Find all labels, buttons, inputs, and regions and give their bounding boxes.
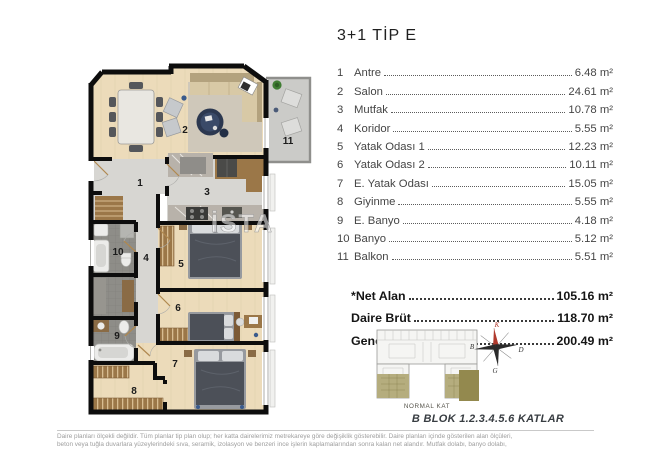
room-label-antre: 1 <box>137 178 143 189</box>
room-list-item: 10Banyo5.12 m² <box>337 227 613 245</box>
compass-rose: K B D G <box>468 320 524 376</box>
bedroom7-furniture <box>184 349 256 409</box>
plan-title: 3+1 TİP E <box>337 27 613 45</box>
room-list-item: 11Balkon5.51 m² <box>337 245 613 263</box>
room-list-item: 8Giyinme5.55 m² <box>337 190 613 208</box>
dot-leader <box>398 204 571 205</box>
compass-north-label: K <box>494 321 500 329</box>
block-caption: B BLOK 1.2.3.4.5.6 KATLAR <box>378 413 598 425</box>
total-net: *Net Alan105.16 m² <box>337 280 613 303</box>
room-label-yatak1: 5 <box>178 259 184 270</box>
dot-leader <box>393 131 571 132</box>
dot-leader <box>403 223 572 224</box>
room-label-banyo: 10 <box>112 247 124 258</box>
info-panel: 3+1 TİP E 1Antre6.48 m² 2Salon24.61 m² 3… <box>337 27 613 348</box>
room-list-item: 9E. Banyo4.18 m² <box>337 208 613 226</box>
room-label-salon: 2 <box>182 125 188 136</box>
dot-leader <box>432 186 565 187</box>
dot-leader <box>428 167 567 168</box>
floor-plan-sheet: 1 2 3 4 5 6 7 8 9 10 11 İSTA 3+1 TİP E 1… <box>0 0 650 450</box>
disclaimer: Daire planları ölçekli değildir. Tüm pla… <box>57 433 594 450</box>
dot-leader <box>409 298 554 300</box>
room-label-giyinme: 8 <box>131 386 137 397</box>
dot-leader <box>384 75 572 76</box>
room-list-item: 6Yatak Odası 210.11 m² <box>337 153 613 171</box>
floor-plan: 1 2 3 4 5 6 7 8 9 10 11 İSTA <box>80 60 314 416</box>
room-list-item: 5Yatak Odası 112.23 m² <box>337 135 613 153</box>
key-plan-wings <box>377 370 479 401</box>
dot-leader <box>386 94 566 95</box>
compass-south-label: G <box>492 367 497 375</box>
disclaimer-line2: beton veya tuğla duvarlara yüzeylerindek… <box>57 441 594 449</box>
disclaimer-line1: Daire planları ölçekli değildir. Tüm pla… <box>57 433 594 441</box>
room-label-eyatak: 7 <box>172 359 178 370</box>
room-label-ebanyo: 9 <box>114 331 120 342</box>
dot-leader <box>428 149 566 150</box>
key-plan-label: NORMAL KAT <box>368 403 486 410</box>
room-list-item: 3Mutfak10.78 m² <box>337 98 613 116</box>
antre-furniture <box>95 196 123 220</box>
room-list: 1Antre6.48 m² 2Salon24.61 m² 3Mutfak10.7… <box>337 61 613 263</box>
room-list-item: 4Koridor5.55 m² <box>337 116 613 134</box>
room-list-item: 1Antre6.48 m² <box>337 61 613 79</box>
room-label-yatak2: 6 <box>175 303 181 314</box>
dot-leader <box>391 112 566 113</box>
room-label-koridor: 4 <box>143 253 149 264</box>
divider-line <box>57 430 594 431</box>
dot-leader <box>389 241 572 242</box>
compass-west-label: B <box>470 343 475 351</box>
room-list-item: 2Salon24.61 m² <box>337 79 613 97</box>
key-plan <box>375 328 479 404</box>
room-label-mutfak: 3 <box>204 187 210 198</box>
watermark: İSTA <box>211 210 274 238</box>
room-list-item: 7E. Yatak Odası15.05 m² <box>337 171 613 189</box>
compass-east-label: D <box>517 346 523 354</box>
floor-plan-drawing: 1 2 3 4 5 6 7 8 9 10 11 İSTA <box>80 60 314 416</box>
dot-leader <box>392 259 572 260</box>
room-label-balkon: 11 <box>283 136 294 147</box>
